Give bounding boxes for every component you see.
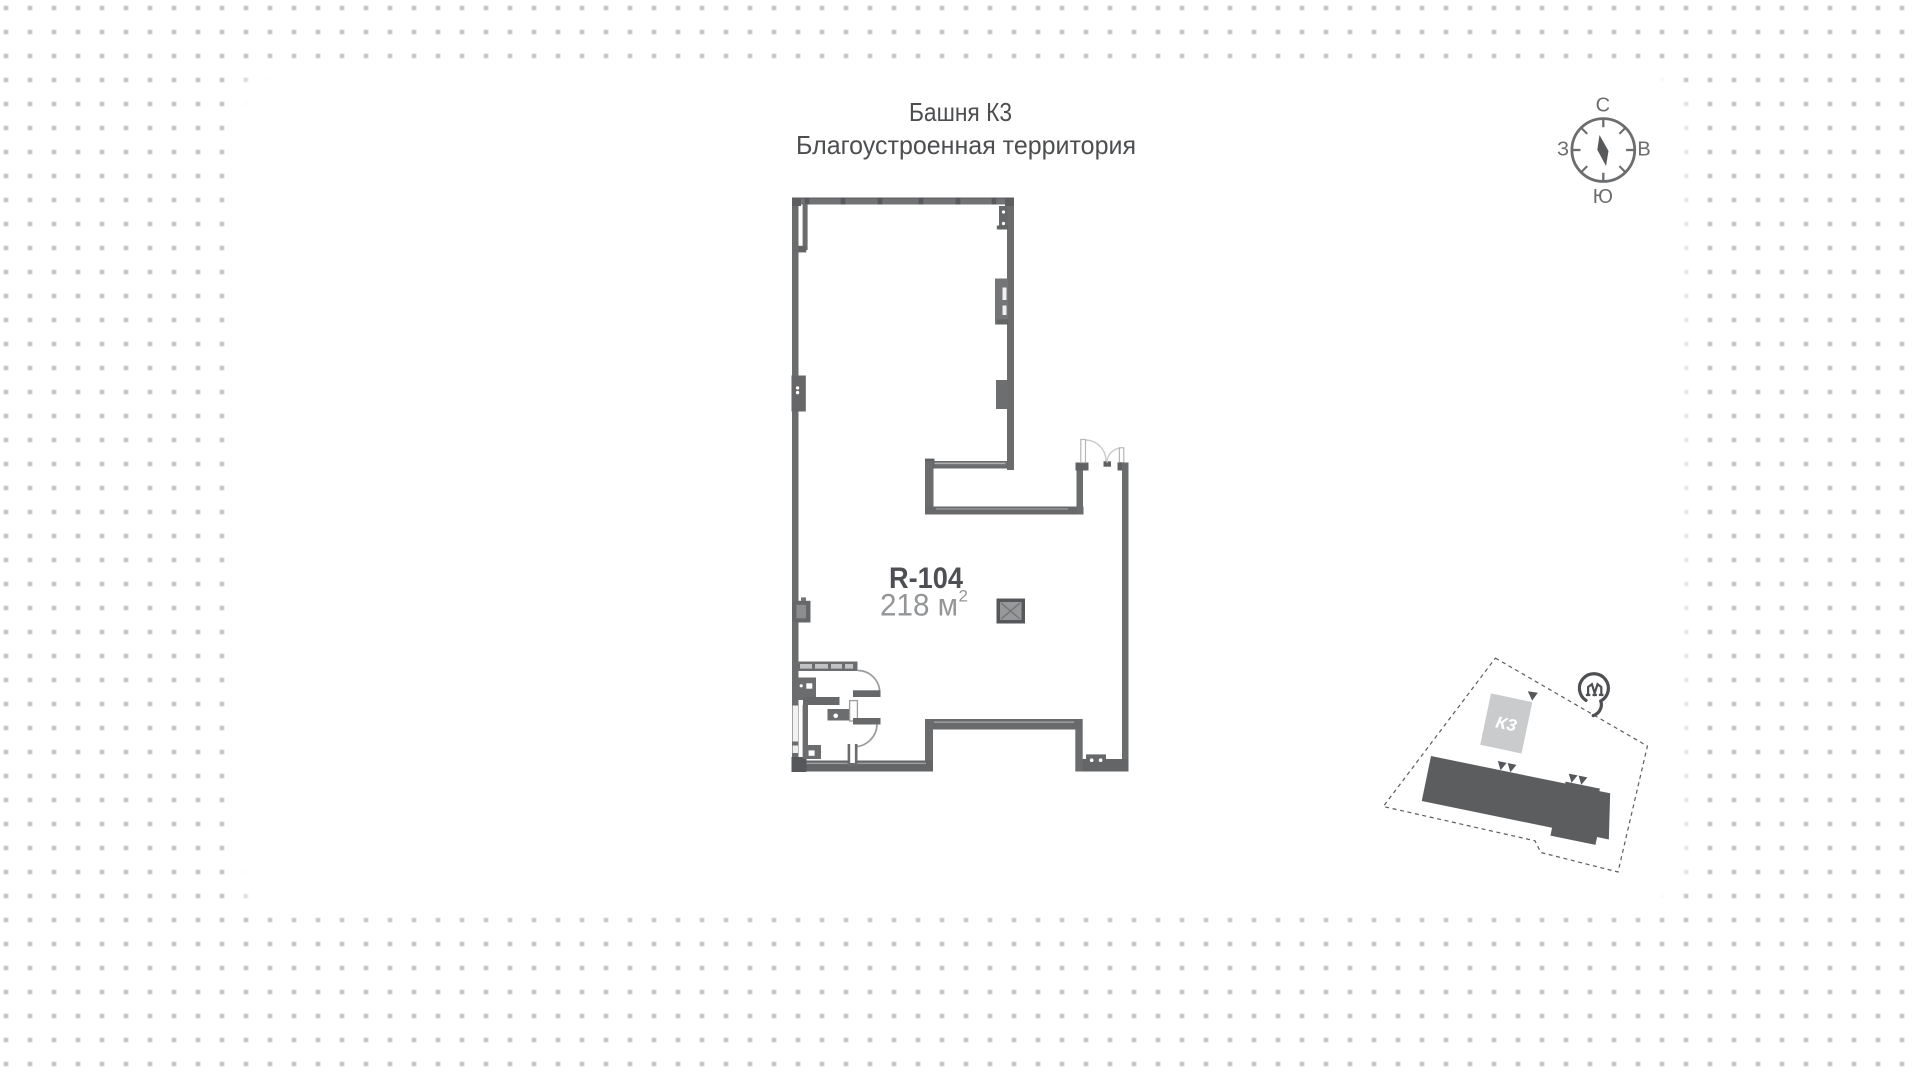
svg-text:Башня К3: Башня К3 bbox=[909, 97, 1012, 127]
svg-text:С: С bbox=[1596, 95, 1610, 117]
svg-text:В: В bbox=[1637, 139, 1650, 161]
svg-text:З: З bbox=[1557, 139, 1569, 161]
svg-text:2: 2 bbox=[959, 587, 968, 606]
svg-text:218 м: 218 м bbox=[880, 587, 958, 623]
svg-text:Ю: Ю bbox=[1593, 186, 1613, 208]
svg-text:Благоустроенная территория: Благоустроенная территория bbox=[796, 130, 1136, 160]
